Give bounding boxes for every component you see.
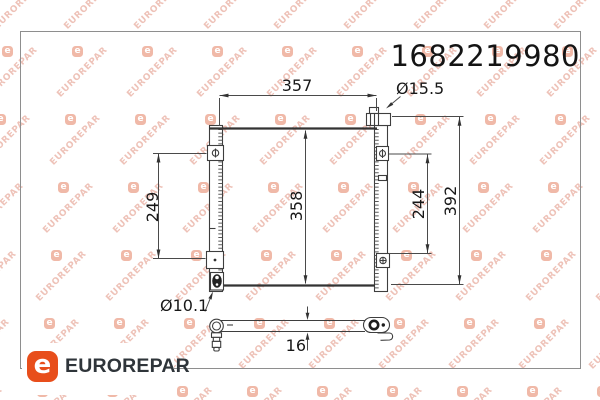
dimension-label-392: 392 [441, 186, 460, 217]
dimension-label-bottom-diameter: Ø10.1 [160, 296, 208, 315]
bracket-top-right [377, 147, 389, 161]
side-view-right-fitting [364, 318, 393, 341]
dimension-top-fitting: Ø15.5 [386, 79, 444, 109]
dimension-label-244: 244 [409, 189, 428, 220]
dimension-left-span: 249 [143, 154, 207, 259]
brand-name: EUROREPAR [65, 355, 190, 378]
dimension-label-16: 16 [286, 336, 306, 355]
bottom-port [211, 273, 224, 291]
catalog-image: EUROREPAReEUROREPAReEUROREPAReEUROREPARe… [0, 0, 600, 400]
side-view-left-flange [210, 319, 224, 333]
dimension-label-249: 249 [143, 192, 162, 223]
dimension-label-357: 357 [282, 76, 313, 95]
dimension-label-358: 358 [287, 191, 306, 222]
eurorepar-logo-icon: e [27, 351, 58, 382]
dimension-bottom-fitting: Ø10.1 [160, 292, 213, 316]
top-fitting [367, 108, 391, 126]
bracket-bottom-right [377, 254, 390, 268]
dimension-label-top-diameter: Ø15.5 [396, 79, 444, 98]
dimension-center-height: 358 [287, 130, 307, 284]
dimension-width-top: 357 [220, 76, 377, 126]
bracket-bottom-left [207, 252, 224, 269]
condenser-technical-drawing: 357 Ø15.5 249 358 [0, 0, 600, 400]
eurorepar-logo: e EUROREPAR [27, 351, 190, 382]
side-view-pipe-stub [212, 333, 222, 351]
bracket-top-left [208, 146, 224, 161]
dimension-profile-thickness: 16 [286, 307, 310, 356]
right-tank-notch [379, 176, 387, 181]
dimension-right-span: 244 [389, 154, 432, 254]
dimension-annotations: 357 Ø15.5 249 358 [143, 76, 464, 355]
